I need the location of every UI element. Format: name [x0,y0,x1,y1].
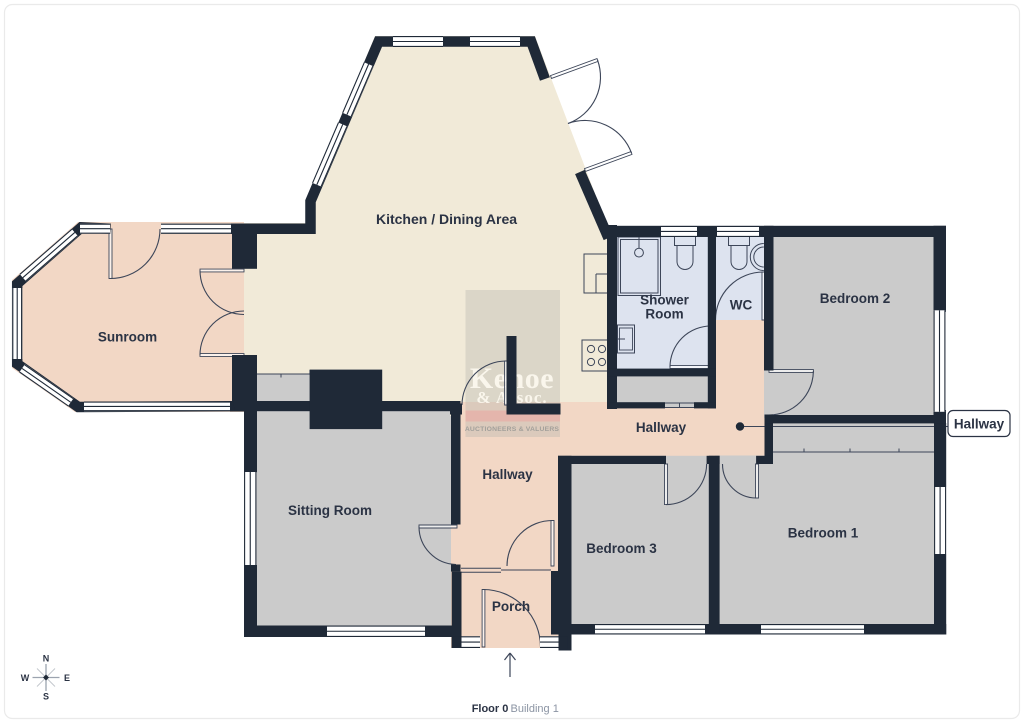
svg-text:Shower: Shower [640,292,690,307]
svg-text:Hallway: Hallway [636,420,687,435]
svg-text:N: N [43,654,50,664]
svg-text:Porch: Porch [492,599,530,614]
svg-text:Floor 0: Floor 0 [472,703,509,715]
svg-text:Hallway: Hallway [482,467,533,482]
svg-text:Kitchen / Dining Area: Kitchen / Dining Area [376,211,517,227]
svg-text:S: S [43,692,49,702]
svg-text:WC: WC [730,298,753,313]
svg-text:Sunroom: Sunroom [98,330,157,345]
svg-text:Bedroom 2: Bedroom 2 [820,291,891,306]
svg-text:Hallway: Hallway [954,417,1005,432]
svg-text:Building 1: Building 1 [511,703,559,715]
svg-text:W: W [21,673,30,683]
svg-text:E: E [64,673,70,683]
svg-text:Bedroom 3: Bedroom 3 [586,541,657,556]
svg-text:AUCTIONEERS & VALUERS: AUCTIONEERS & VALUERS [465,426,560,433]
svg-text:Sitting Room: Sitting Room [288,503,372,518]
svg-text:Bedroom 1: Bedroom 1 [788,526,859,541]
svg-text:Room: Room [645,306,683,321]
